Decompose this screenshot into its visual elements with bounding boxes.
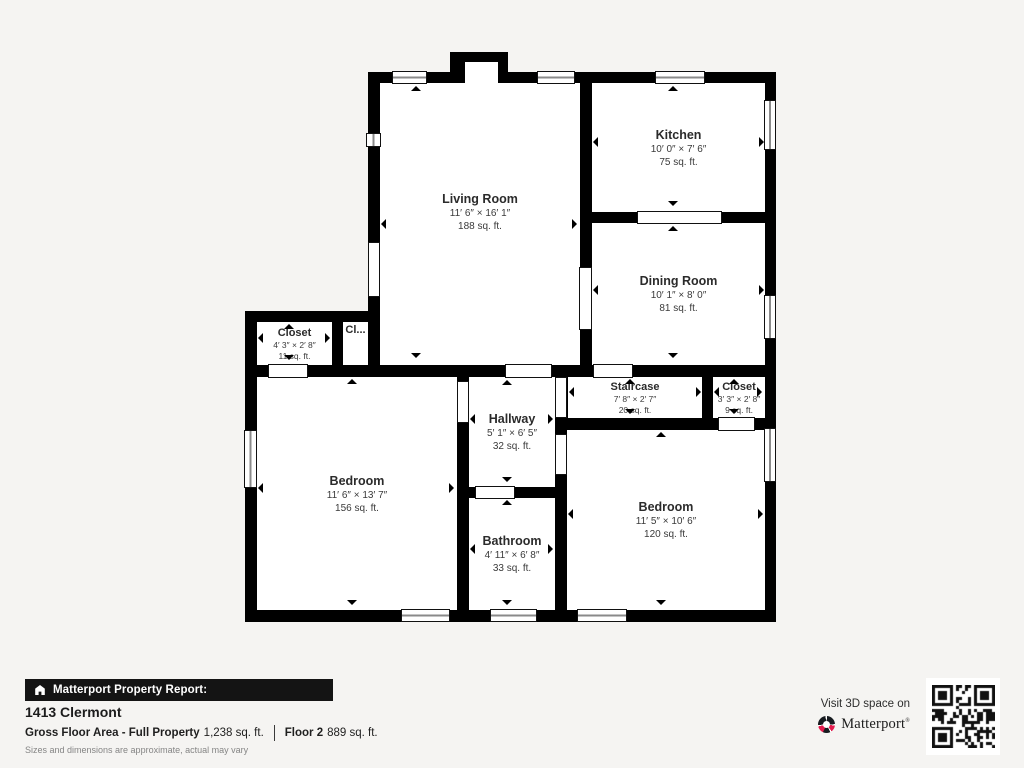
dimension-arrow <box>729 379 739 384</box>
door-opening <box>268 364 308 378</box>
room-area: 75 sq. ft. <box>651 157 707 168</box>
dimension-arrow <box>470 414 475 424</box>
room-dimensions: 11′ 6″ × 13′ 7″ <box>327 490 387 501</box>
dimension-arrow <box>411 353 421 358</box>
door-opening <box>555 434 567 475</box>
window <box>366 133 381 147</box>
qr-code-pattern <box>932 685 995 748</box>
dimension-arrow <box>347 379 357 384</box>
room-name: Kitchen <box>651 128 707 142</box>
dimension-arrow <box>625 379 635 384</box>
room-name: Dining Room <box>640 274 718 288</box>
dimension-arrow <box>284 324 294 329</box>
room-dimensions: 3′ 3″ × 2′ 8″ <box>718 394 761 404</box>
window <box>490 609 537 622</box>
dimension-arrow <box>757 387 762 397</box>
room-name: Bedroom <box>327 474 387 488</box>
dimension-arrow <box>593 285 598 295</box>
door-opening <box>637 211 722 224</box>
window <box>764 100 776 150</box>
room-dimensions: 5′ 1″ × 6′ 5″ <box>487 428 537 439</box>
floor-value: 889 sq. ft. <box>327 727 378 739</box>
dimension-arrow <box>668 353 678 358</box>
room-name: Closet <box>273 327 316 339</box>
room-dimensions: 4′ 11″ × 6′ 8″ <box>482 550 541 561</box>
window <box>655 71 705 84</box>
chimney-notch <box>465 62 498 83</box>
matterport-wordmark: Matterport® <box>841 716 910 733</box>
dimension-arrow <box>568 509 573 519</box>
door-opening <box>368 242 380 297</box>
window <box>244 430 257 488</box>
dimension-arrow <box>729 409 739 414</box>
dimension-arrow <box>548 414 553 424</box>
dimension-arrow <box>714 387 719 397</box>
dimension-arrow <box>502 500 512 505</box>
room-name: Hallway <box>487 412 537 426</box>
window <box>537 71 575 84</box>
room-area: 32 sq. ft. <box>487 441 537 452</box>
room-dining-room: Dining Room 10′ 1″ × 8′ 0″ 81 sq. ft. <box>592 223 765 365</box>
dimension-arrow <box>502 600 512 605</box>
dimension-arrow <box>449 483 454 493</box>
dimension-arrow <box>572 219 577 229</box>
dimension-arrow <box>668 86 678 91</box>
room-closet-right: Closet 3′ 3″ × 2′ 8″ 9 sq. ft. <box>713 377 765 418</box>
room-dimensions: 7′ 8″ × 2′ 7″ <box>611 394 660 404</box>
room-bedroom-right: Bedroom 11′ 5″ × 10′ 6″ 120 sq. ft. <box>567 430 765 610</box>
room-closet-left: Closet 4′ 3″ × 2′ 8″ 11 sq. ft. <box>257 322 332 365</box>
dimension-arrow <box>759 285 764 295</box>
metrics-divider <box>274 725 275 741</box>
dimension-arrow <box>284 355 294 360</box>
room-area: 156 sq. ft. <box>327 503 387 514</box>
door-opening <box>555 377 567 418</box>
report-title-bar: Matterport Property Report: <box>25 679 333 701</box>
room-hallway: Hallway 5′ 1″ × 6′ 5″ 32 sq. ft. <box>469 377 555 487</box>
report-title: Matterport Property Report: <box>53 684 207 696</box>
door-opening <box>505 364 552 378</box>
room-name: Staircase <box>611 381 660 393</box>
dimension-arrow <box>381 219 386 229</box>
visit-3d-text: Visit 3D space on <box>700 698 910 710</box>
dimension-arrow <box>668 201 678 206</box>
window <box>764 295 776 339</box>
door-opening <box>593 364 633 378</box>
floor-label: Floor 2 <box>285 727 323 739</box>
dimension-arrow <box>656 432 666 437</box>
dimension-arrow <box>656 600 666 605</box>
room-bedroom-left: Bedroom 11′ 6″ × 13′ 7″ 156 sq. ft. <box>257 377 457 610</box>
room-area: 81 sq. ft. <box>640 303 718 314</box>
room-dimensions: 11′ 5″ × 10′ 6″ <box>636 516 696 527</box>
door-opening <box>579 267 592 330</box>
room-name: Cl... <box>345 324 365 336</box>
room-area: 9 sq. ft. <box>718 405 761 415</box>
dimension-arrow <box>625 409 635 414</box>
house-icon <box>34 684 46 696</box>
door-opening <box>718 417 755 431</box>
room-dimensions: 11′ 6″ × 16′ 1″ <box>442 208 518 219</box>
room-dimensions: 4′ 3″ × 2′ 8″ <box>273 340 316 350</box>
room-area: 11 sq. ft. <box>273 351 316 361</box>
qr-code <box>926 678 1000 755</box>
room-name: Living Room <box>442 192 518 206</box>
matterport-pinwheel-icon <box>818 716 835 733</box>
dimension-arrow <box>758 509 763 519</box>
room-dimensions: 10′ 0″ × 7′ 6″ <box>651 144 707 155</box>
window <box>577 609 627 622</box>
gross-area-value: 1,238 sq. ft. <box>204 727 264 739</box>
room-bathroom: Bathroom 4′ 11″ × 6′ 8″ 33 sq. ft. <box>469 498 555 610</box>
dimension-arrow <box>593 137 598 147</box>
dimension-arrow <box>759 137 764 147</box>
room-name: Bedroom <box>636 500 696 514</box>
door-opening <box>457 381 469 423</box>
room-dimensions: 10′ 1″ × 8′ 0″ <box>640 290 718 301</box>
window <box>764 428 776 482</box>
room-living-room: Living Room 11′ 6″ × 16′ 1″ 188 sq. ft. <box>380 83 580 365</box>
dimension-arrow <box>502 380 512 385</box>
room-staircase: Staircase 7′ 8″ × 2′ 7″ 20 sq. ft. <box>568 377 702 418</box>
dimension-arrow <box>696 387 701 397</box>
dimension-arrow <box>668 226 678 231</box>
disclaimer-text: Sizes and dimensions are approximate, ac… <box>25 745 248 755</box>
room-name: Closet <box>718 381 761 393</box>
dimension-arrow <box>325 333 330 343</box>
dimension-arrow <box>569 387 574 397</box>
room-area: 33 sq. ft. <box>482 563 541 574</box>
dimension-arrow <box>258 333 263 343</box>
gross-area-label: Gross Floor Area - Full Property <box>25 727 200 739</box>
floor-area-metrics: Gross Floor Area - Full Property 1,238 s… <box>25 725 378 741</box>
dimension-arrow <box>258 483 263 493</box>
door-opening <box>475 486 515 499</box>
floorplan-page: Living Room 11′ 6″ × 16′ 1″ 188 sq. ft. … <box>0 0 1024 768</box>
room-area: 188 sq. ft. <box>442 221 518 232</box>
window <box>401 609 450 622</box>
dimension-arrow <box>470 544 475 554</box>
dimension-arrow <box>411 86 421 91</box>
matterport-brand: Matterport® <box>700 714 910 734</box>
dimension-arrow <box>502 477 512 482</box>
dimension-arrow <box>347 600 357 605</box>
room-name: Bathroom <box>482 534 541 548</box>
room-kitchen: Kitchen 10′ 0″ × 7′ 6″ 75 sq. ft. <box>592 83 765 212</box>
room-area: 120 sq. ft. <box>636 529 696 540</box>
room-closet-small: Cl... <box>343 322 368 365</box>
dimension-arrow <box>548 544 553 554</box>
room-area: 20 sq. ft. <box>611 405 660 415</box>
window <box>392 71 427 84</box>
property-address: 1413 Clermont <box>25 704 121 720</box>
